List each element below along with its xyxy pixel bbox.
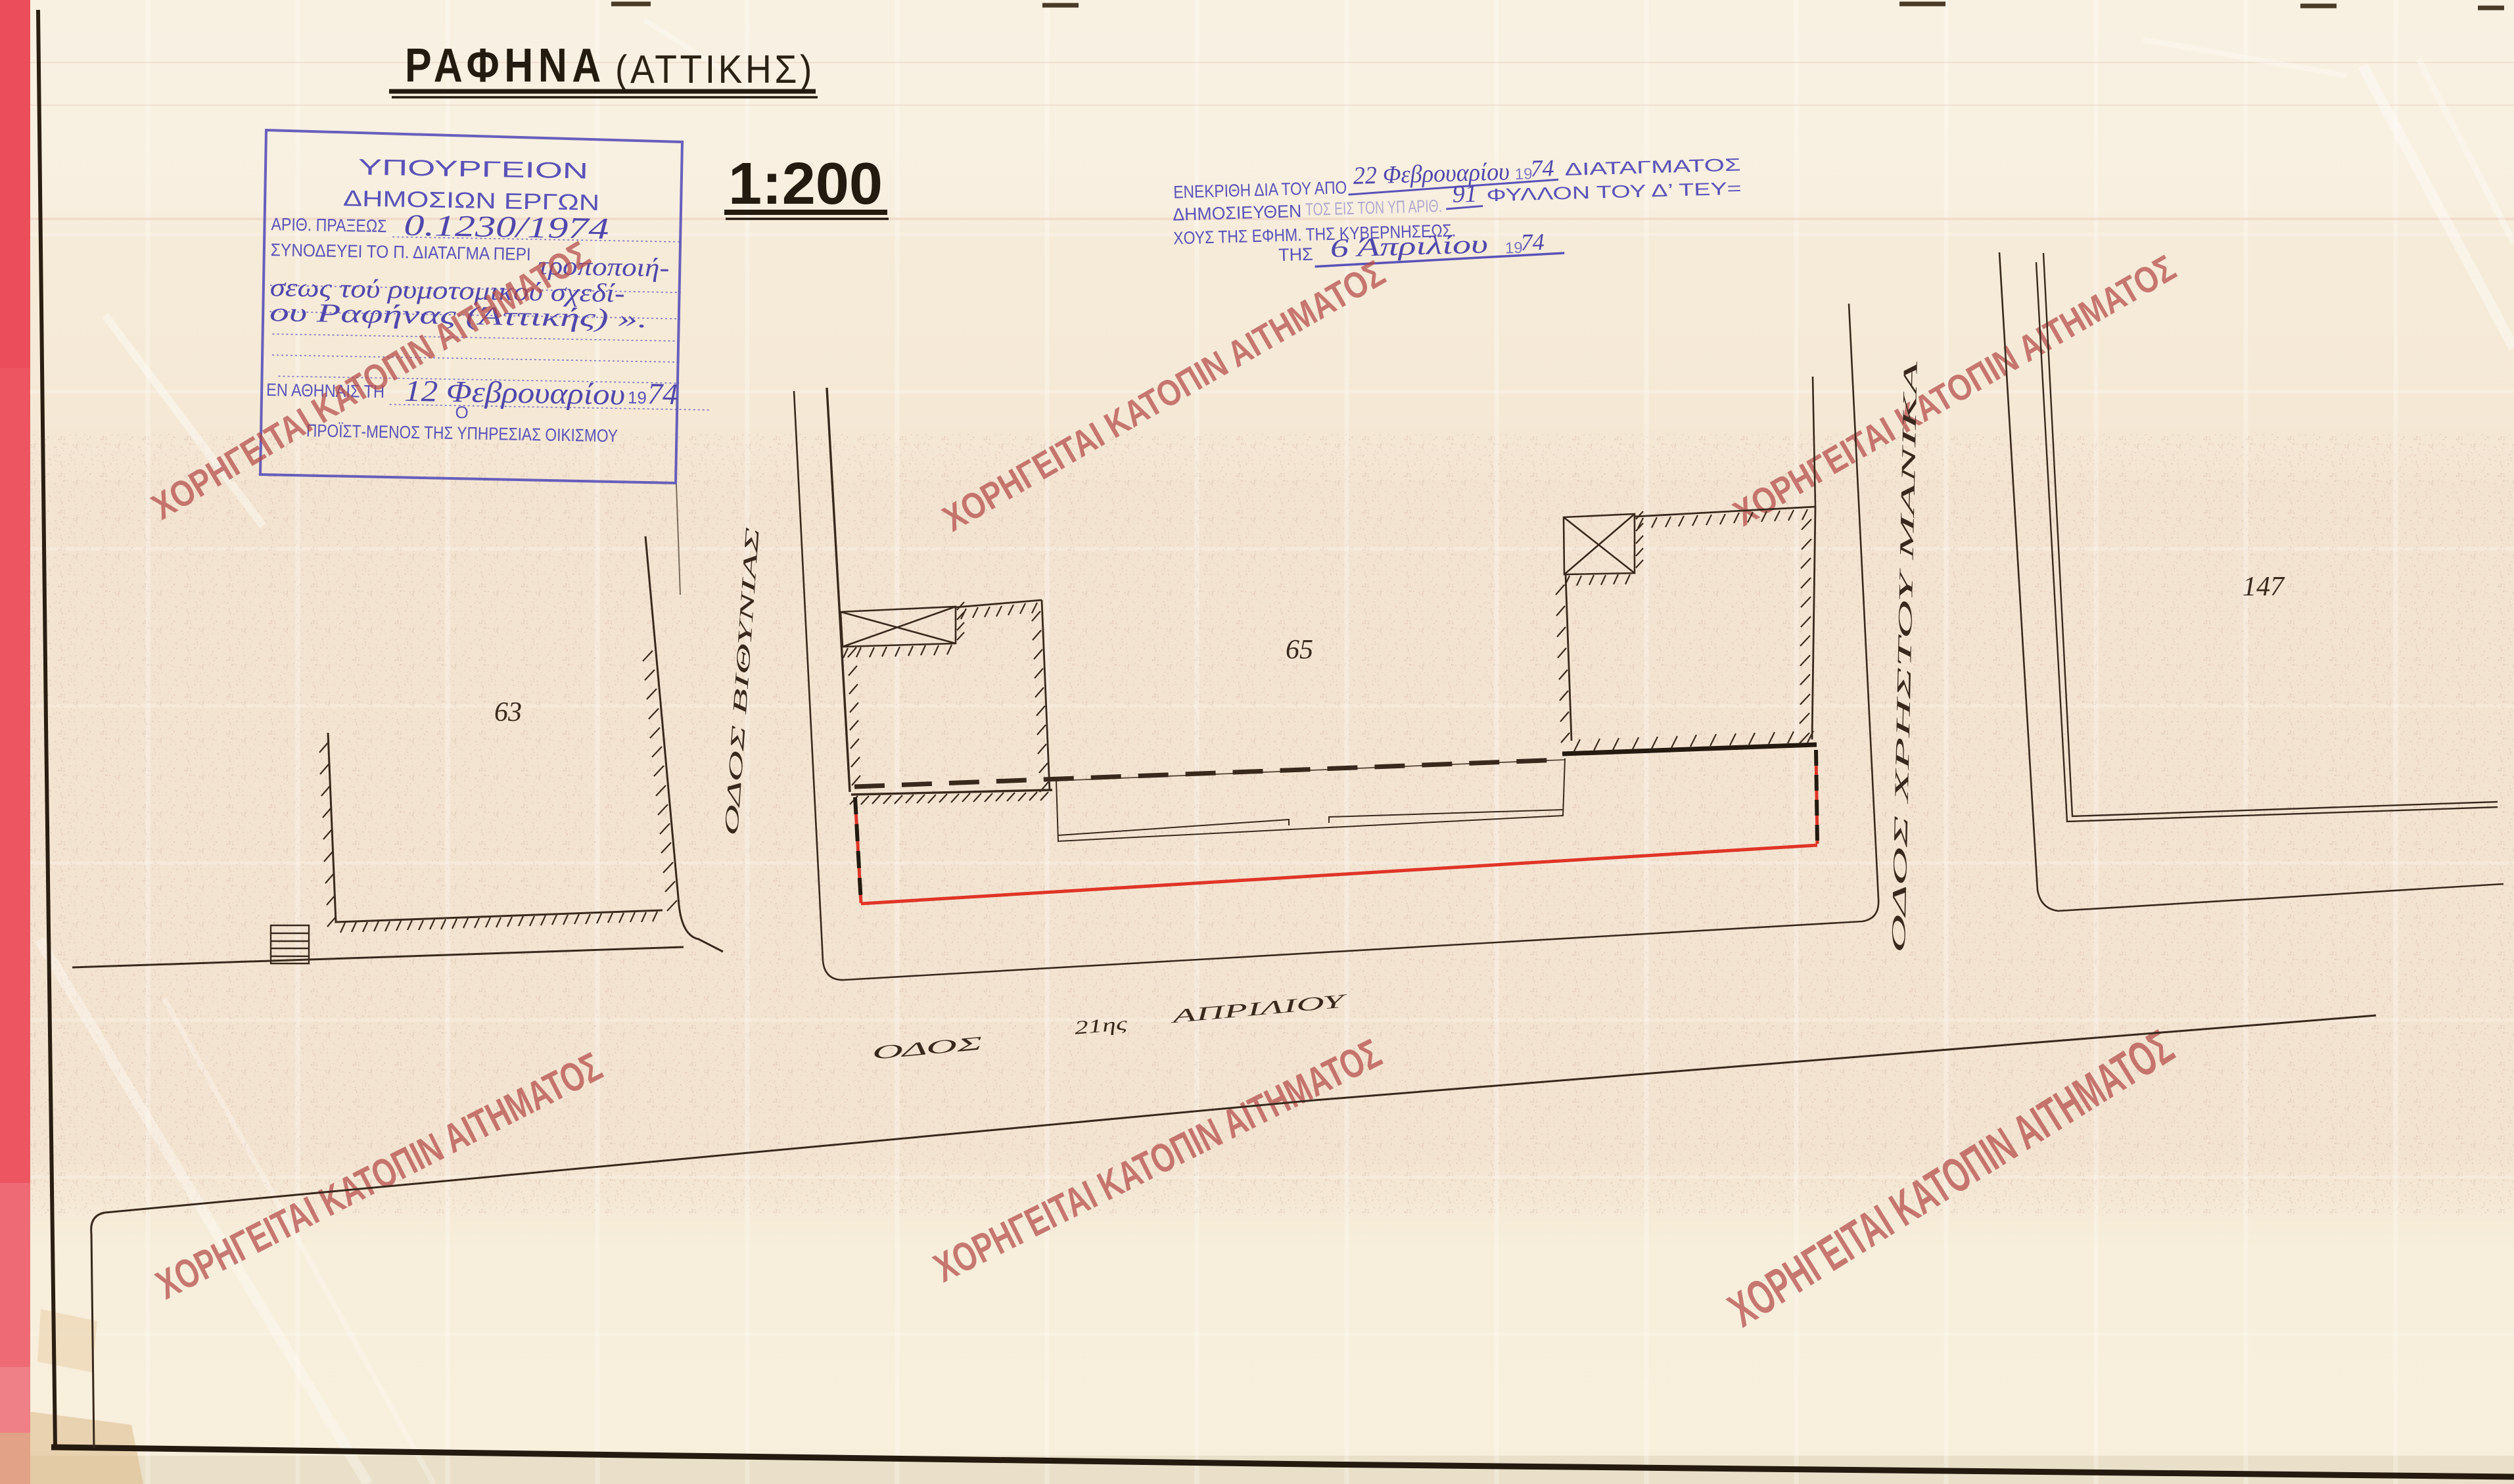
svg-text:1:200: 1:200: [728, 151, 883, 217]
svg-text:74: 74: [1520, 229, 1545, 256]
svg-text:63: 63: [494, 697, 522, 728]
svg-text:(ΑΤΤΙΚΗΣ): (ΑΤΤΙΚΗΣ): [615, 47, 815, 91]
svg-text:74: 74: [1530, 154, 1554, 181]
svg-text:ΔΗΜΟΣΙΕΥΘΕΝ: ΔΗΜΟΣΙΕΥΘΕΝ: [1173, 201, 1302, 224]
svg-text:65: 65: [1286, 635, 1313, 665]
svg-text:ΤΗΣ: ΤΗΣ: [1278, 244, 1314, 265]
svg-text:ΑΡΙΘ. ΠΡΑΞΕΩΣ: ΑΡΙΘ. ΠΡΑΞΕΩΣ: [271, 214, 386, 236]
svg-text:ΤΟΣ ΕΙΣ ΤΟΝ ΥΠ ΑΡΙΘ.: ΤΟΣ ΕΙΣ ΤΟΝ ΥΠ ΑΡΙΘ.: [1305, 196, 1443, 220]
svg-text:91: 91: [1452, 180, 1478, 208]
svg-text:ΥΠΟΥΡΓΕΙΟΝ: ΥΠΟΥΡΓΕΙΟΝ: [358, 154, 589, 183]
svg-text:Ο: Ο: [455, 402, 469, 422]
svg-text:74: 74: [647, 377, 678, 411]
svg-text:ΡΑΦΗΝΑ: ΡΑΦΗΝΑ: [405, 39, 606, 92]
svg-text:19: 19: [628, 388, 647, 408]
svg-text:147: 147: [2243, 572, 2285, 602]
